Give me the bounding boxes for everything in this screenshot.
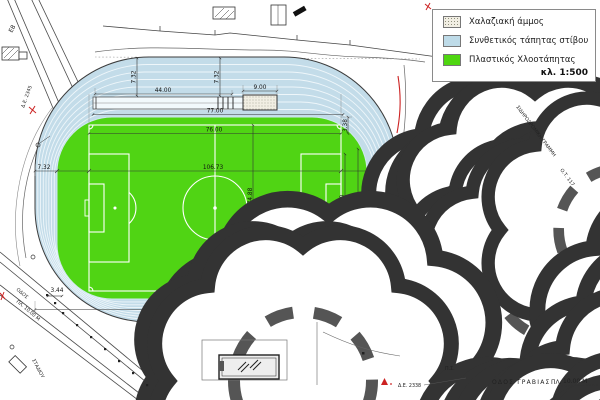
dim-offset-right: 3.38: [343, 119, 349, 132]
ps-label: Π.Σ.: [445, 366, 455, 372]
road-left-name2: ΣΤΑΔΙΟΥ: [30, 358, 45, 379]
legend-item-track: Συνθετικός τάπητας στίβου: [443, 34, 595, 48]
legend-label: Συνθετικός τάπητας στίβου: [469, 36, 588, 46]
road-e8-label: Ε8: [8, 24, 18, 34]
dim-lane-left: 7.32: [38, 165, 51, 171]
legend-item-sand: Χαλαζιακή άμμος: [443, 15, 595, 29]
dim-sand-pit: 9.00: [254, 85, 267, 91]
road-bottom-pl: ΠΛ.: [551, 379, 562, 386]
road-bottom-name: ΟΔΟΣ ΓΡΑΒΙΑΣ: [492, 379, 551, 386]
road-left-width: ΠΛ. 10.00 Μ: [15, 299, 41, 322]
dim-runway-length: 44.00: [155, 88, 172, 94]
site-plan: 7.32 7.32 44.00 9.00 77.00 76.00 3.38 10…: [0, 0, 600, 400]
parcel-label-bottom: Δ.Ε. 2338: [398, 383, 421, 389]
dim-pitch-width: 76.00: [206, 128, 223, 134]
legend-label: Πλαστικός Χλοοτάπητας: [469, 55, 576, 65]
parcel-label-top-left: Δ.Ε. 2345: [20, 85, 34, 109]
sand-swatch-icon: [443, 16, 461, 28]
legend-label: Χαλαζιακή άμμος: [469, 17, 544, 27]
dim-pitch-length: 106.73: [203, 165, 224, 171]
dim-offset-bottom: 3.44: [51, 288, 64, 294]
sand-pit: [243, 95, 277, 110]
dim-lane-top-left: 7.32: [132, 70, 138, 83]
grass-swatch-icon: [443, 54, 461, 66]
sprint-runway: [93, 95, 277, 110]
dim-runway-total: 77.00: [207, 109, 224, 115]
legend-item-grass: Πλαστικός Χλοοτάπητας: [443, 53, 595, 67]
scale-label: κλ. 1:500: [541, 68, 588, 78]
dim-lane-top-mid: 7.32: [215, 70, 221, 83]
legend: Χαλαζιακή άμμος Συνθετικός τάπητας στίβο…: [432, 9, 596, 82]
road-bottom-width: 10.00 Μ: [563, 378, 587, 385]
track-swatch-icon: [443, 35, 461, 47]
